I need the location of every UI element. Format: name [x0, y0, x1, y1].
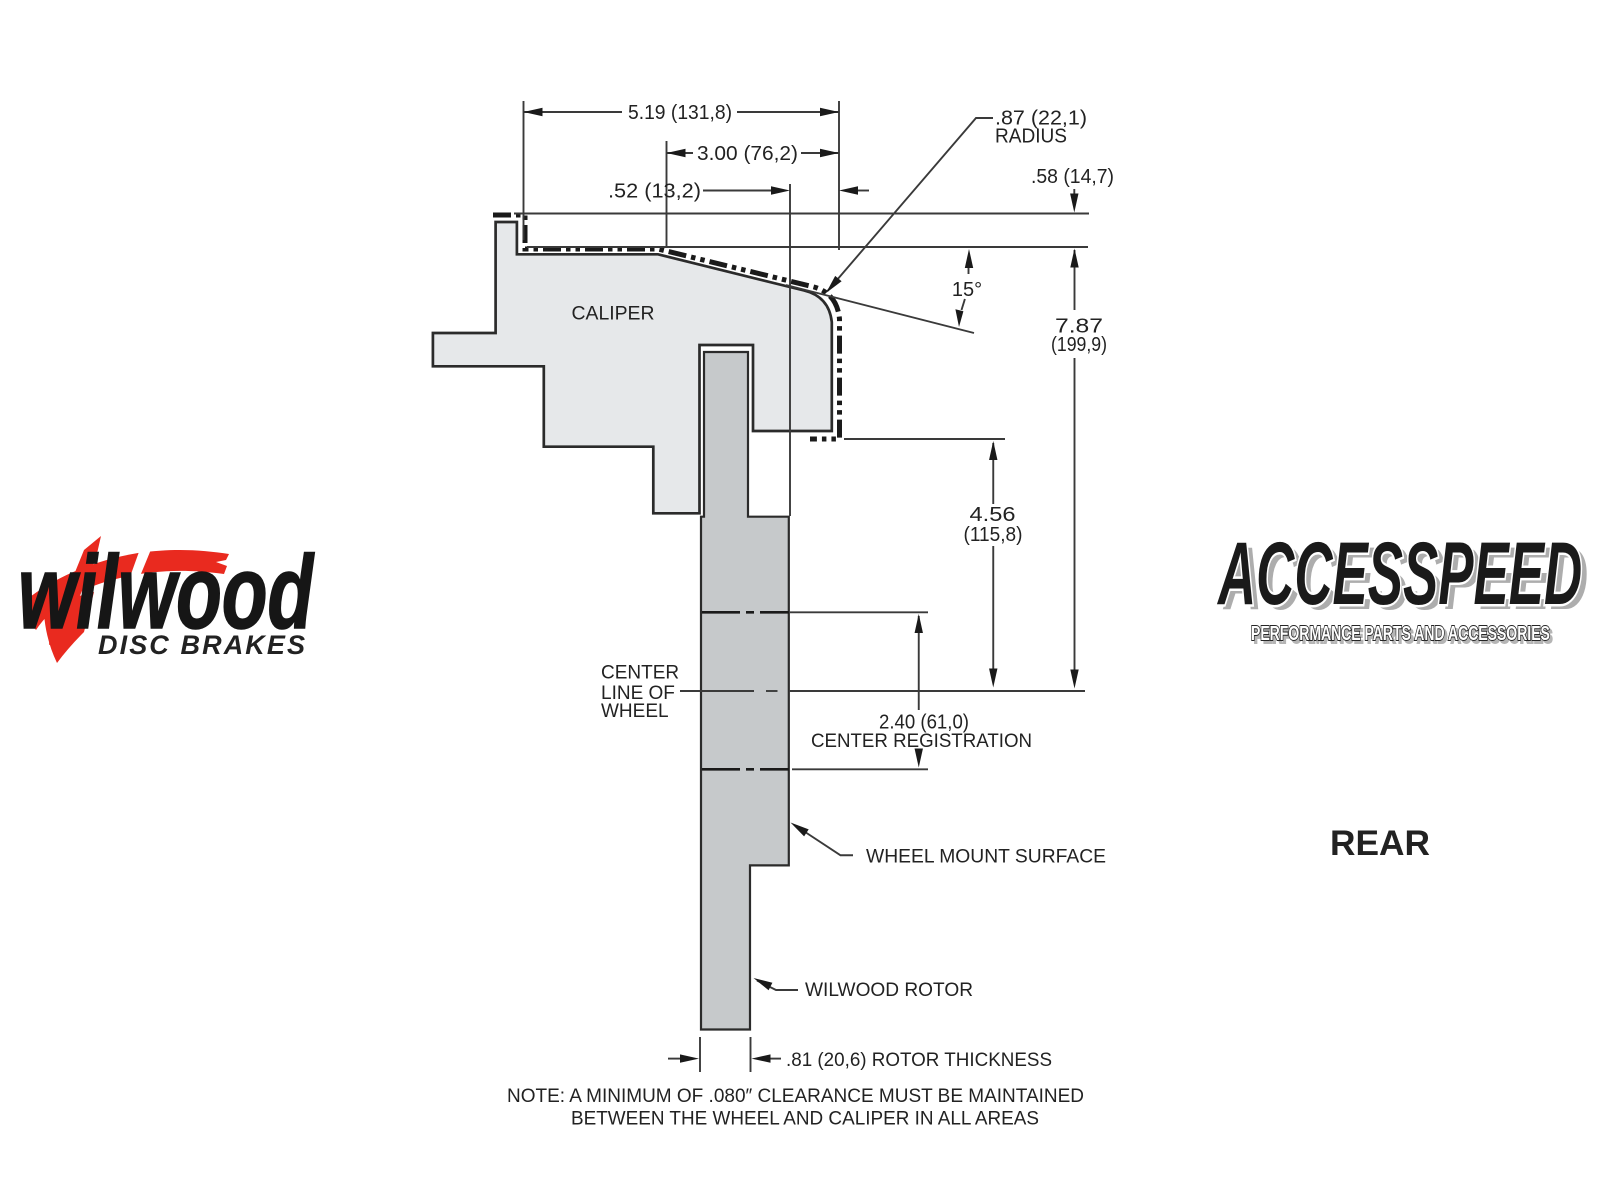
svg-text:WILWOOD ROTOR: WILWOOD ROTOR: [805, 979, 973, 1001]
svg-text:CENTER REGISTRATION: CENTER REGISTRATION: [811, 731, 1032, 752]
svg-text:4.56: 4.56: [970, 504, 1016, 526]
svg-text:WHEEL MOUNT SURFACE: WHEEL MOUNT SURFACE: [866, 846, 1106, 868]
svg-text:.58 (14,7): .58 (14,7): [1031, 166, 1114, 188]
svg-text:.52 (13,2): .52 (13,2): [608, 181, 701, 203]
svg-text:REAR: REAR: [1330, 824, 1430, 863]
svg-text:CALIPER: CALIPER: [572, 304, 655, 325]
svg-text:(199,9): (199,9): [1051, 334, 1107, 356]
svg-text:PERFORMANCE PARTS AND ACCESSOR: PERFORMANCE PARTS AND ACCESSORIES: [1251, 621, 1550, 644]
svg-text:15°: 15°: [952, 279, 982, 301]
svg-text:NOTE: A MINIMUM OF .080″ CLEAR: NOTE: A MINIMUM OF .080″ CLEARANCE MUST …: [507, 1086, 1084, 1107]
svg-text:(115,8): (115,8): [964, 524, 1023, 546]
svg-text:WHEEL: WHEEL: [601, 701, 669, 722]
svg-text:RADIUS: RADIUS: [995, 126, 1067, 148]
svg-text:5.19 (131,8): 5.19 (131,8): [628, 102, 732, 124]
svg-text:DISC BRAKES: DISC BRAKES: [98, 630, 308, 660]
svg-text:3.00 (76,2): 3.00 (76,2): [697, 143, 798, 165]
svg-text:ACCESSPEED: ACCESSPEED: [1217, 524, 1583, 624]
svg-text:BETWEEN THE WHEEL AND CALIPER: BETWEEN THE WHEEL AND CALIPER IN ALL ARE…: [571, 1109, 1039, 1130]
svg-text:CENTER: CENTER: [601, 663, 679, 684]
svg-text:.81 (20,6) ROTOR THICKNESS: .81 (20,6) ROTOR THICKNESS: [786, 1050, 1052, 1071]
